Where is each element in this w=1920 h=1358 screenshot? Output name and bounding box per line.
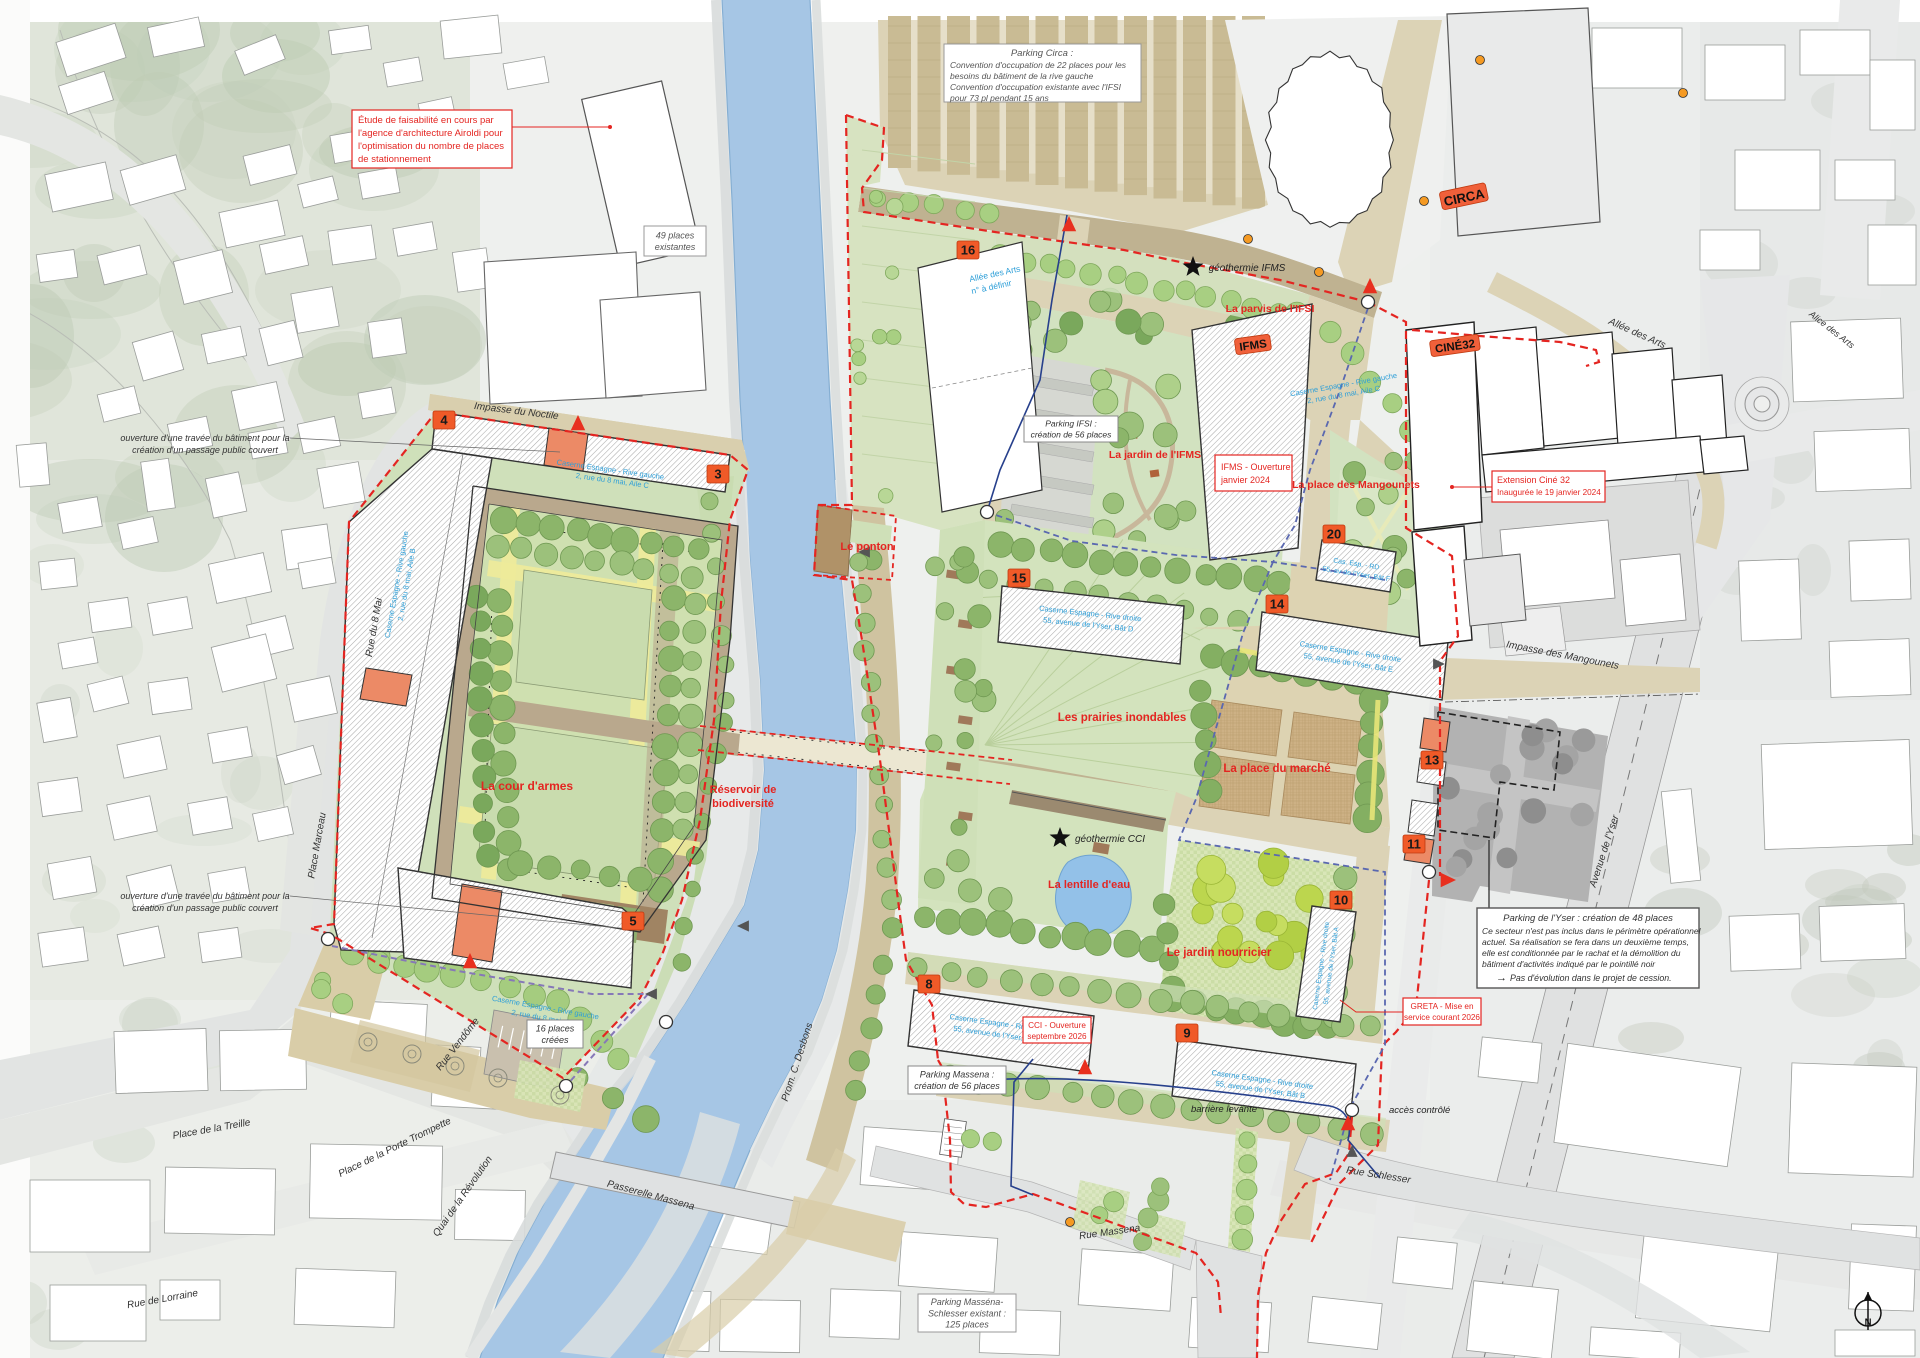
- svg-text:géothermie IFMS: géothermie IFMS: [1209, 263, 1286, 274]
- svg-text:accès contrôlé: accès contrôlé: [1389, 1105, 1450, 1116]
- svg-text:9: 9: [1183, 1026, 1190, 1041]
- svg-text:La lentille d'eau: La lentille d'eau: [1048, 879, 1130, 891]
- svg-text:Parking de l'Yser : création d: Parking de l'Yser : création de 48 place…: [1503, 913, 1673, 924]
- svg-text:elle est conditionnée par le r: elle est conditionnée par le rachat et l…: [1482, 948, 1681, 958]
- svg-text:création d'un passage public c: création d'un passage public couvert: [132, 445, 278, 455]
- svg-text:Inaugurée le 19 janvier 2024: Inaugurée le 19 janvier 2024: [1497, 488, 1601, 497]
- svg-text:8: 8: [925, 977, 932, 992]
- svg-text:125 places: 125 places: [945, 1320, 989, 1330]
- svg-text:actuel. Sa réalisation se fera: actuel. Sa réalisation se fera dans un d…: [1482, 937, 1689, 947]
- svg-text:service courant 2026: service courant 2026: [1404, 1013, 1480, 1022]
- svg-text:Parking Circa :: Parking Circa :: [1011, 48, 1074, 59]
- svg-text:GRETA - Mise en: GRETA - Mise en: [1410, 1002, 1474, 1011]
- svg-text:Schlesser existant :: Schlesser existant :: [928, 1308, 1007, 1318]
- svg-text:13: 13: [1425, 753, 1439, 768]
- svg-text:Étude de faisabilité en cours: Étude de faisabilité en cours par: [358, 115, 494, 126]
- svg-text:création de 56 places: création de 56 places: [914, 1081, 1000, 1091]
- svg-text:janvier 2024: janvier 2024: [1220, 475, 1270, 485]
- svg-text:Parking IFSI :: Parking IFSI :: [1045, 419, 1097, 429]
- svg-text:16 places: 16 places: [536, 1024, 575, 1034]
- svg-text:Pas d'évolution dans le projet: Pas d'évolution dans le projet de cessio…: [1510, 973, 1672, 983]
- svg-text:5: 5: [629, 914, 636, 929]
- svg-text:création d'un passage public c: création d'un passage public couvert: [132, 903, 278, 913]
- svg-text:N: N: [1865, 1317, 1872, 1328]
- svg-text:10: 10: [1334, 893, 1348, 908]
- svg-text:de stationnement: de stationnement: [358, 154, 431, 165]
- svg-text:pour 73 pl pendant 15 ans: pour 73 pl pendant 15 ans: [949, 93, 1050, 103]
- svg-text:→: →: [1496, 972, 1507, 984]
- svg-text:l'optimisation du nombre de pl: l'optimisation du nombre de places: [358, 141, 504, 152]
- svg-text:Convention d'occupation de 22: Convention d'occupation de 22 places pou…: [950, 60, 1127, 70]
- svg-text:CCI - Ouverture: CCI - Ouverture: [1028, 1021, 1086, 1030]
- svg-text:biodiversité: biodiversité: [712, 798, 774, 810]
- svg-text:Les prairies inondables: Les prairies inondables: [1058, 712, 1186, 724]
- svg-text:barrière levante: barrière levante: [1191, 1104, 1257, 1115]
- svg-text:Réservoir de: Réservoir de: [710, 784, 777, 796]
- svg-text:15: 15: [1012, 571, 1026, 586]
- svg-text:20: 20: [1327, 527, 1341, 542]
- svg-text:3: 3: [714, 467, 721, 482]
- svg-text:La cour d'armes: La cour d'armes: [481, 779, 574, 793]
- svg-text:Parking Massena :: Parking Massena :: [920, 1070, 995, 1080]
- svg-text:l'agence d'architecture Airold: l'agence d'architecture Airoldi pour: [358, 128, 503, 139]
- svg-text:Ce secteur n'est pas inclus da: Ce secteur n'est pas inclus dans le péri…: [1482, 926, 1702, 936]
- svg-text:bâtiment d'activités indiqué p: bâtiment d'activités indiqué par le poin…: [1482, 959, 1656, 969]
- svg-text:Le jardin nourricier: Le jardin nourricier: [1167, 947, 1272, 959]
- svg-text:septembre 2026: septembre 2026: [1027, 1032, 1087, 1041]
- svg-text:IFMS - Ouverture: IFMS - Ouverture: [1221, 462, 1291, 472]
- svg-text:géothermie CCI: géothermie CCI: [1075, 834, 1145, 845]
- svg-text:création de 56 places: création de 56 places: [1031, 430, 1113, 440]
- svg-text:La place du marché: La place du marché: [1223, 763, 1330, 775]
- svg-text:créées: créées: [541, 1035, 569, 1045]
- svg-text:La parvis de l'IFSI: La parvis de l'IFSI: [1226, 303, 1315, 315]
- svg-text:49 places: 49 places: [656, 231, 695, 241]
- svg-text:Convention d'occupation exista: Convention d'occupation existante avec l…: [950, 82, 1122, 92]
- svg-text:besoins du bâtiment de la rive: besoins du bâtiment de la rive gauche: [950, 71, 1093, 81]
- svg-text:La jardin de l'IFMS: La jardin de l'IFMS: [1109, 449, 1201, 461]
- svg-text:16: 16: [961, 243, 975, 258]
- svg-text:Parking Masséna-: Parking Masséna-: [931, 1297, 1004, 1307]
- svg-text:Extension Ciné 32: Extension Ciné 32: [1497, 475, 1570, 485]
- svg-text:11: 11: [1407, 837, 1421, 852]
- svg-text:4: 4: [440, 413, 448, 428]
- svg-text:ouverture d'une travée du bâti: ouverture d'une travée du bâtiment pour …: [120, 433, 289, 443]
- svg-text:La place des Mangounets: La place des Mangounets: [1292, 479, 1420, 491]
- svg-text:existantes: existantes: [655, 242, 696, 252]
- svg-text:14: 14: [1270, 597, 1285, 612]
- svg-text:Le ponton: Le ponton: [840, 541, 893, 553]
- svg-text:ouverture d'une travée du bâti: ouverture d'une travée du bâtiment pour …: [120, 891, 289, 901]
